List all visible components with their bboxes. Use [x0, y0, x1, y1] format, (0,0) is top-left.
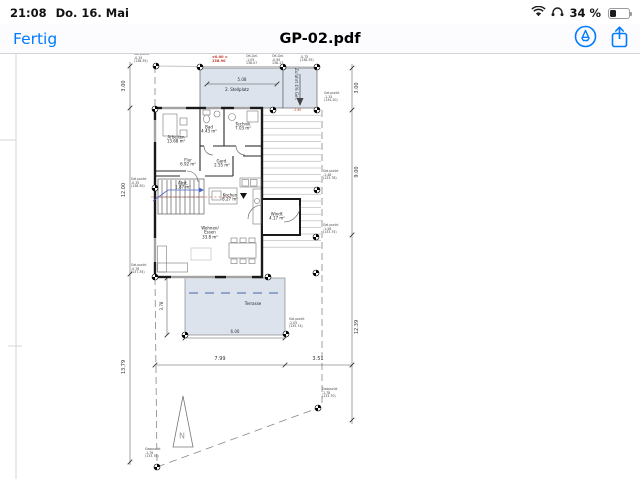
page-fold-marks [0, 46, 22, 479]
dim-terrace-height: 3.78 [160, 302, 164, 311]
dim-parking-width: 5.08 [238, 78, 247, 82]
pdf-viewer-screen: 21:08 Do. 16. Mai 34 % [0, 0, 640, 480]
room-label-stellplatz: 2. Stellplatz [225, 88, 249, 92]
battery-percent: 34 % [569, 6, 601, 20]
battery-icon [608, 8, 630, 19]
dim-right-mid: 9.00 [355, 166, 359, 177]
dim-terrace-width: 6.00 [231, 330, 240, 334]
north-letter: N [179, 432, 185, 441]
survey-label: Gel.punkt -0.76 (137.35) [131, 264, 147, 275]
room-label-flur: Flur 6.92 m² [180, 159, 196, 168]
room-label-garderobe: Gard. 2.55 m² [214, 160, 230, 169]
status-bar: 21:08 Do. 16. Mai 34 % [0, 0, 640, 24]
survey-label: OK.Gel. -1.05 138.07 [246, 55, 258, 66]
dim-left-mid: 12.00 [122, 183, 126, 197]
dim-right-top: 3.00 [355, 82, 359, 93]
survey-label: Gel.punkt -0.35 (138.30) [131, 178, 147, 189]
terrace-area [185, 278, 285, 335]
markup-pen-icon[interactable] [574, 25, 597, 52]
headphones-icon [551, 6, 564, 20]
slope-value-note: -1.90 [293, 108, 301, 112]
date: Do. 16. Mai [56, 6, 129, 20]
room-label-wohnen: Wohnen/ Essen 33.8 m² [201, 226, 219, 239]
survey-label: Gel.punkt -1.46 (133.78) [323, 170, 339, 181]
survey-label: Gel.punkt -0.15 (138.35) [134, 53, 150, 64]
dim-left-top: 3.00 [122, 80, 126, 91]
survey-label: OK.Gel. -0.95 138.17 [272, 55, 284, 66]
room-label-arbeiten: Arbeiten 13.68 m² [167, 136, 185, 145]
survey-label: Geopunkt -1.78 (133.70) [322, 388, 338, 399]
dim-bottom-right: 3.51 [312, 357, 323, 361]
dim-right-bottom: 12.39 [355, 320, 359, 334]
document-title: GP-02.pdf [0, 31, 640, 47]
room-label-windfang: Windf. 4.17 m² [269, 213, 285, 222]
room-label-terrasse: Terrasse [245, 302, 262, 306]
dim-left-bottom: 13.79 [122, 360, 126, 374]
pdf-toolbar: Fertig GP-02.pdf [0, 24, 640, 54]
room-label-zufahrt: Zufahrt 4% Gef. [294, 68, 298, 100]
survey-label: Geopunkt -1.76 (133.76) [145, 448, 161, 459]
room-label-technik: Technik 7.03 m² [235, 123, 251, 132]
wifi-icon [531, 6, 546, 20]
room-label-bad: Bad 4.43 m² [201, 126, 217, 135]
survey-label: Gel.punkt -1.15 (134.20) [324, 92, 340, 103]
survey-label: Gel.punkt -1.56 (133.75) [323, 224, 339, 235]
room-label-kochen: Kochen 8.27 m² [222, 194, 238, 203]
clock: 21:08 [10, 6, 47, 20]
survey-label: Gel.punkt -2.05 (135.74) [289, 318, 305, 329]
dim-bottom-left: 7.99 [214, 357, 225, 361]
room-label-abstell: Abst. 1.87 m² [175, 182, 191, 191]
done-button[interactable]: Fertig [13, 30, 57, 48]
share-icon[interactable] [609, 25, 630, 53]
floor-plan-drawing [0, 0, 640, 480]
